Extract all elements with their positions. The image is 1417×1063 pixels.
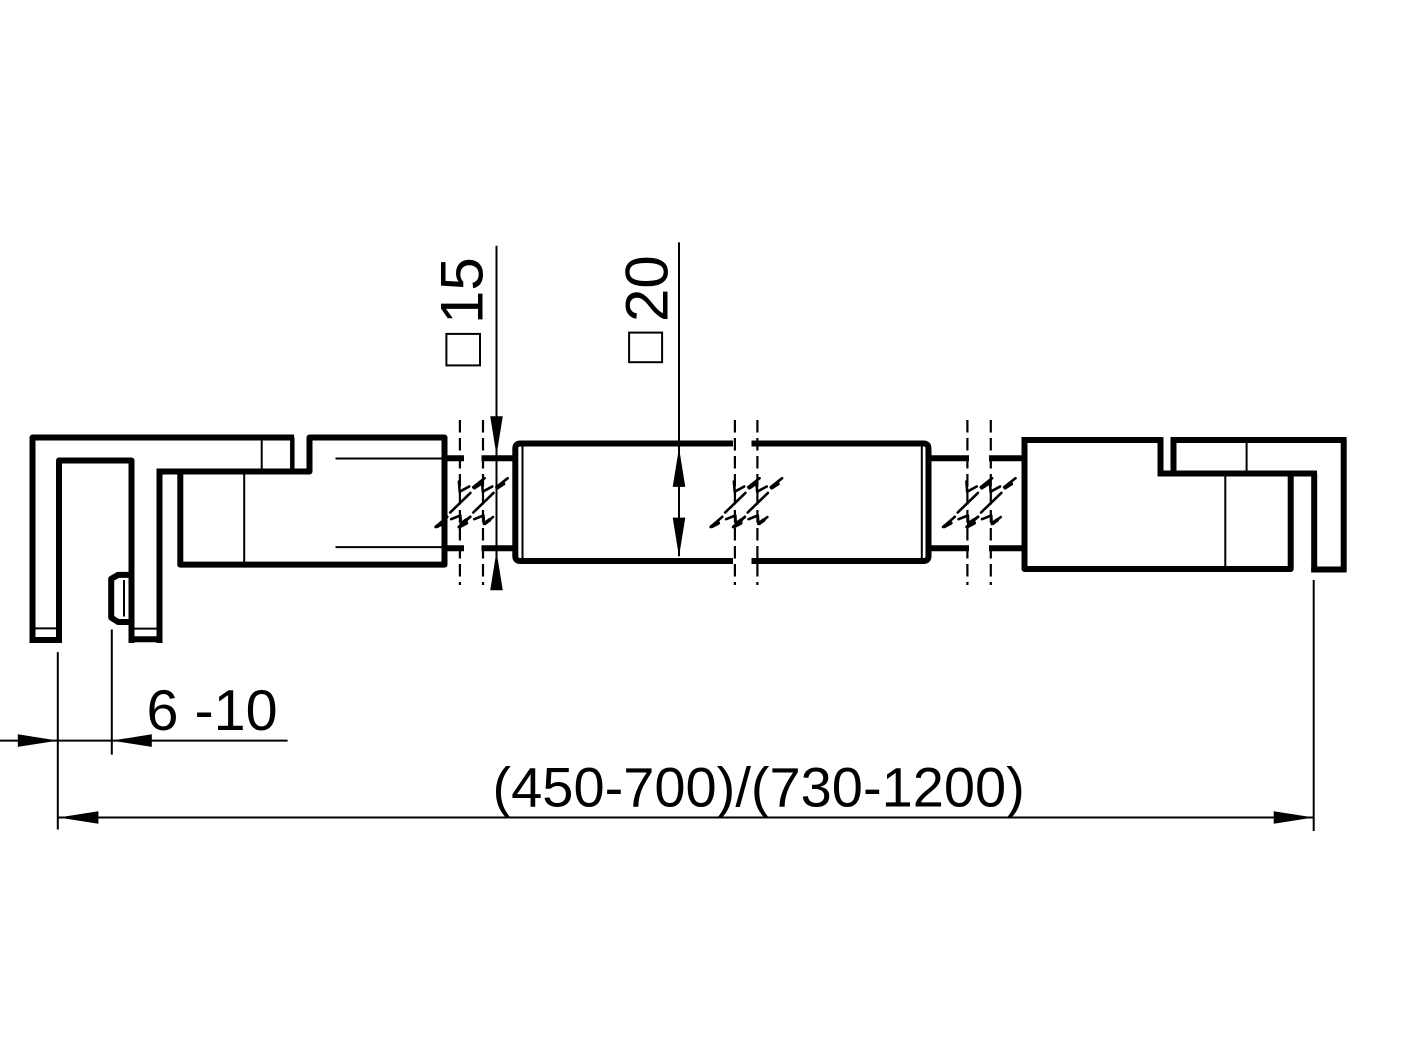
svg-text:(450-700)/(730-1200): (450-700)/(730-1200): [493, 756, 1025, 819]
svg-text:20: 20: [614, 255, 681, 322]
svg-text:6 -10: 6 -10: [147, 679, 278, 743]
svg-text:15: 15: [429, 257, 496, 324]
